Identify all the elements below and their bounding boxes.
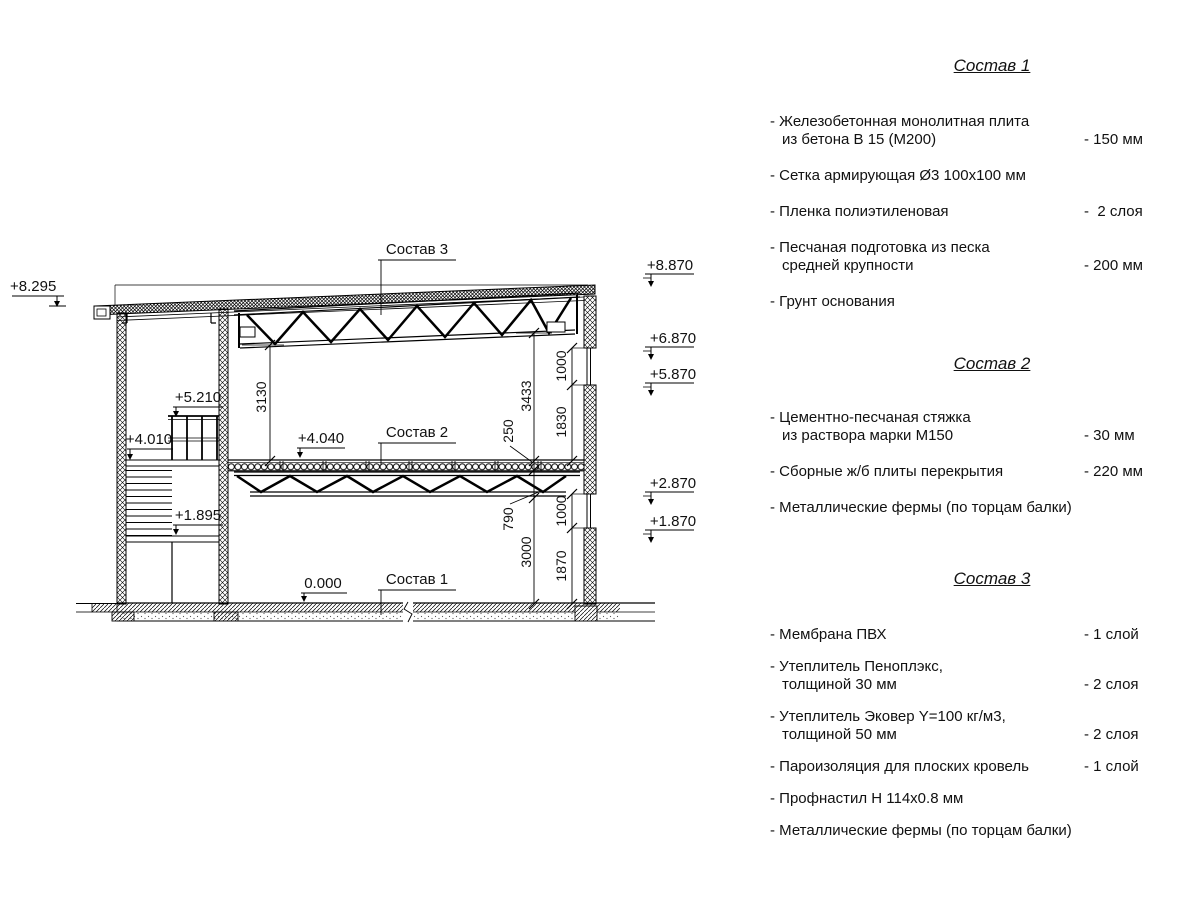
spec-item-label: - Мембрана ПВХ <box>770 626 1084 644</box>
spec-section-sostav-1: Состав 1 - Железобетонная монолитная пли… <box>770 55 1162 329</box>
spec-item-label: - Песчаная подготовка из песка средней к… <box>770 239 1084 275</box>
spec-item-value: - 1 слой <box>1084 626 1162 644</box>
elevation-mark-5210: +5.210 <box>173 390 223 405</box>
spec-item: - Железобетонная монолитная плита из бет… <box>770 113 1162 149</box>
spec-item-value: - 1 слой <box>1084 758 1162 776</box>
spec-item: - Сетка армирующая Ø3 100x100 мм <box>770 167 1162 185</box>
spec-item: - Металлические фермы (по торцам балки) <box>770 499 1162 517</box>
spec-item-label: - Сетка армирующая Ø3 100x100 мм <box>770 167 1084 185</box>
spec-item-label: - Пленка полиэтиленовая <box>770 203 1084 221</box>
spec-item-label: - Железобетонная монолитная плита из бет… <box>770 113 1084 149</box>
elevation-mark-4010: +4.010 <box>124 432 174 447</box>
elevation-mark-5870: +5.870 <box>648 367 698 382</box>
dimension-1000-lower: 1000 <box>554 481 568 541</box>
left-wall <box>117 313 126 604</box>
spec-item-value: - 30 мм <box>1084 427 1162 445</box>
callout-sostav-2: Состав 2 <box>378 425 456 440</box>
section-title: Состав 2 <box>796 353 1188 375</box>
spec-item: - Утеплитель Пеноплэкс, толщиной 30 мм -… <box>770 658 1162 694</box>
spec-item-value: - 150 мм <box>1084 131 1162 149</box>
middle-wall <box>219 309 228 604</box>
spec-item: - Мембрана ПВХ - 1 слой <box>770 626 1162 644</box>
spec-item: - Грунт основания <box>770 293 1162 311</box>
spec-item: - Металлические фермы (по торцам балки) <box>770 822 1162 840</box>
spec-item-label: - Грунт основания <box>770 293 1084 311</box>
dimension-3130: 3130 <box>254 367 268 427</box>
dimension-250: 250 <box>501 411 515 451</box>
elevation-mark-8295: +8.295 <box>10 279 64 294</box>
spec-section-sostav-2: Состав 2 - Цементно-песчаная стяжка из р… <box>770 353 1162 535</box>
spec-item-value: - 220 мм <box>1084 463 1162 481</box>
spec-item: - Утеплитель Эковер Y=100 кг/м3, толщино… <box>770 708 1162 744</box>
spec-item-value: - 2 слоя <box>1084 726 1162 744</box>
section-drawing-sheet: +8.295 +8.870 +6.870 +5.870 +2.870 +1.87… <box>0 0 1200 900</box>
section-title: Состав 3 <box>796 568 1188 590</box>
spec-item-label: - Утеплитель Пеноплэкс, толщиной 30 мм <box>770 658 1084 694</box>
floor-truss <box>234 472 580 496</box>
callout-sostav-3: Состав 3 <box>378 242 456 257</box>
dimension-790: 790 <box>501 499 515 539</box>
dimension-1870: 1870 <box>554 536 568 596</box>
floor-slab <box>228 460 584 471</box>
spec-item-label: - Цементно-песчаная стяжка из раствора м… <box>770 409 1084 445</box>
dimension-1830: 1830 <box>554 392 568 452</box>
elevation-mark-2870: +2.870 <box>648 476 698 491</box>
spec-item: - Пароизоляция для плоских кровель - 1 с… <box>770 758 1162 776</box>
elevation-mark-6870: +6.870 <box>648 331 698 346</box>
spec-section-sostav-3: Состав 3 - Мембрана ПВХ - 1 слой - Утепл… <box>770 568 1162 854</box>
dimension-1000-upper: 1000 <box>554 336 568 396</box>
spec-item: - Цементно-песчаная стяжка из раствора м… <box>770 409 1162 445</box>
elevation-mark-4040: +4.040 <box>295 431 347 446</box>
dimension-3433: 3433 <box>519 366 533 426</box>
spec-item-label: - Профнастил Н 114x0.8 мм <box>770 790 1084 808</box>
ground-floor-assembly <box>76 602 655 622</box>
dimension-3000: 3000 <box>519 522 533 582</box>
elevation-mark-1895: +1.895 <box>173 508 223 523</box>
spec-item-label: - Металлические фермы (по торцам балки) <box>770 499 1084 517</box>
spec-item-label: - Утеплитель Эковер Y=100 кг/м3, толщино… <box>770 708 1084 744</box>
spec-item-label: - Сборные ж/б плиты перекрытия <box>770 463 1084 481</box>
spec-item-label: - Пароизоляция для плоских кровель <box>770 758 1084 776</box>
spec-item-value: - 2 слоя <box>1084 676 1162 694</box>
stairwell <box>122 313 219 603</box>
spec-item: - Сборные ж/б плиты перекрытия - 220 мм <box>770 463 1162 481</box>
elevation-mark-8870: +8.870 <box>645 258 695 273</box>
spec-item: - Профнастил Н 114x0.8 мм <box>770 790 1162 808</box>
section-title: Состав 1 <box>796 55 1188 77</box>
spec-item-value: - 2 слоя <box>1084 203 1162 221</box>
elevation-mark-1870: +1.870 <box>648 514 698 529</box>
spec-item-label: - Металлические фермы (по торцам балки) <box>770 822 1084 840</box>
spec-item-value: - 200 мм <box>1084 257 1162 275</box>
callout-sostav-1: Состав 1 <box>378 572 456 587</box>
spec-item: - Пленка полиэтиленовая - 2 слоя <box>770 203 1162 221</box>
right-wall <box>584 296 596 604</box>
elevation-mark-0000: 0.000 <box>299 576 347 591</box>
spec-item: - Песчаная подготовка из песка средней к… <box>770 239 1162 275</box>
